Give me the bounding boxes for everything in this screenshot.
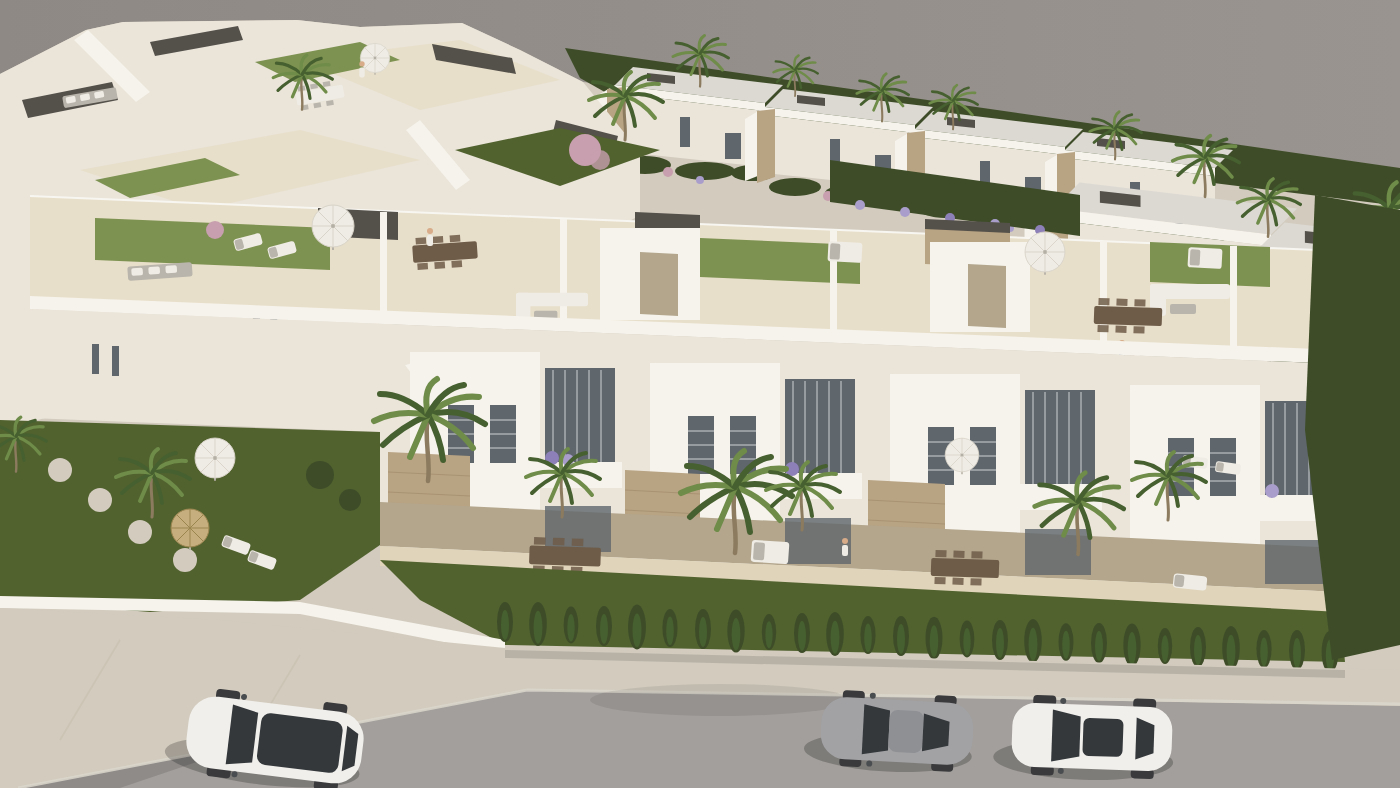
cypress bbox=[1058, 623, 1073, 661]
cypress bbox=[960, 621, 975, 658]
render-viewport: Aerial 3D architectural render of a mode… bbox=[0, 0, 1400, 788]
flowers bbox=[900, 207, 910, 217]
tree-shadow-on-road bbox=[590, 684, 850, 716]
daybed bbox=[1187, 247, 1222, 269]
paver bbox=[173, 548, 197, 572]
windshield bbox=[1051, 710, 1081, 763]
cypress bbox=[992, 620, 1008, 660]
car-roof bbox=[888, 710, 924, 754]
cypress bbox=[529, 602, 547, 646]
cypress bbox=[926, 617, 943, 659]
panoramic-roof bbox=[256, 712, 344, 774]
person bbox=[427, 228, 433, 246]
person bbox=[359, 61, 364, 77]
flower-box bbox=[1265, 484, 1279, 498]
cypress bbox=[1289, 630, 1305, 670]
cypress bbox=[1158, 628, 1172, 664]
window-slit bbox=[92, 344, 99, 374]
cypress bbox=[1123, 623, 1140, 666]
parapet-divider bbox=[380, 212, 387, 314]
garden-shrub bbox=[306, 461, 334, 489]
cypress bbox=[1256, 630, 1271, 668]
garden-shrub bbox=[339, 489, 361, 511]
cypress bbox=[762, 614, 776, 650]
cypress bbox=[1091, 623, 1107, 663]
cypress bbox=[794, 613, 810, 653]
sunroof bbox=[1082, 718, 1123, 757]
window-slit bbox=[112, 346, 119, 376]
cypress bbox=[893, 616, 909, 656]
ground-glass-door bbox=[785, 518, 851, 564]
left-end-garden bbox=[0, 417, 380, 612]
cypress bbox=[695, 609, 711, 649]
blossom-tree bbox=[590, 150, 610, 170]
person bbox=[842, 538, 848, 556]
paver bbox=[128, 520, 152, 544]
ground-glass-door bbox=[1265, 540, 1325, 584]
cypress bbox=[1222, 626, 1240, 670]
aerial-render: Aerial 3D architectural render of a mode… bbox=[0, 0, 1400, 788]
stair-doorway bbox=[640, 252, 678, 316]
cypress bbox=[497, 602, 513, 642]
cypress bbox=[1024, 619, 1042, 663]
flowers bbox=[855, 200, 865, 210]
daybed bbox=[827, 241, 862, 263]
windshield bbox=[862, 704, 891, 755]
roof-planter bbox=[206, 221, 224, 239]
cypress bbox=[727, 609, 744, 652]
cypress bbox=[826, 612, 844, 656]
terrace-daybed bbox=[751, 540, 790, 565]
cypress bbox=[628, 605, 646, 650]
cypress bbox=[596, 606, 612, 646]
paver bbox=[48, 458, 72, 482]
paver bbox=[88, 488, 112, 512]
cypress bbox=[564, 607, 579, 644]
cypress bbox=[1190, 627, 1206, 667]
cypress bbox=[860, 616, 875, 654]
stair-doorway bbox=[968, 264, 1006, 328]
cypress bbox=[662, 609, 677, 647]
ground-glass-door bbox=[1025, 529, 1091, 575]
parapet-divider bbox=[1230, 246, 1237, 352]
